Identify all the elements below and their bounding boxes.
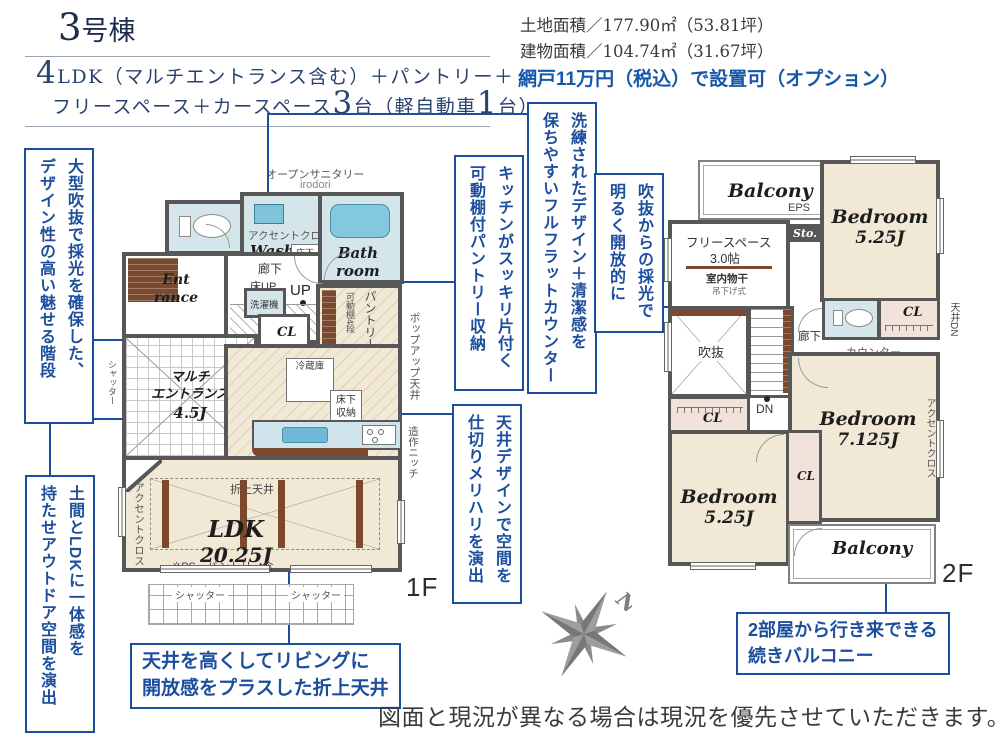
void-label: 吹抜	[696, 342, 726, 361]
closet-2f-left-label: CL	[703, 411, 723, 426]
building-area: 建物面積／104.74㎡（31.67坪）	[520, 38, 773, 62]
fridge-label: 冷蔵庫	[287, 361, 333, 373]
bathtub	[330, 204, 390, 238]
drying-pole	[686, 266, 772, 269]
callout-pantry: キッチンがスッキリ片付く 可動棚付パントリー収納	[454, 155, 524, 391]
spec-num-4ldk: 4	[36, 55, 57, 91]
callout-pantry-line2: 可動棚付パントリー収納	[461, 165, 489, 381]
stove-burner-3	[372, 437, 378, 443]
window-bedroom3-bottom	[690, 562, 756, 570]
pantry-shelf-label: 可動棚4段	[344, 292, 357, 344]
bedroom2-label: Bedroom 7.125J	[804, 408, 932, 450]
connector-counter-h	[267, 113, 527, 115]
callout-living-line2: 開放感をプラスした折上天井	[142, 676, 389, 703]
toilet-tank-1f	[179, 216, 191, 237]
wash-sink	[254, 204, 284, 224]
callout-counter: 洗練されたデザイン＋清潔感を 保ちやすいフルフラットカウンター	[527, 102, 597, 394]
storage-2f-label: Sto.	[793, 227, 817, 240]
spec-num-cars: 3	[333, 85, 354, 121]
popup-ceiling-label: ポップアップ天井	[406, 312, 422, 400]
callout-ceiling-line2: 仕切りメリハリを演出	[459, 414, 487, 594]
stove-burner-2	[378, 429, 384, 435]
entrance-label-2: rance	[154, 290, 198, 308]
callout-counter-line2: 保ちやすいフルフラットカウンター	[534, 112, 562, 384]
toilet-tank-2f	[833, 310, 843, 326]
dn-label: DN	[756, 402, 773, 416]
compass-rose: N	[536, 586, 632, 682]
bedroom2-name: Bedroom	[804, 408, 932, 430]
void-room: 吹抜	[668, 306, 750, 398]
bedroom1-label: Bedroom 5.25J	[830, 206, 930, 248]
callout-doma-line1: 土間とLDKに一体感を	[60, 485, 88, 723]
callout-void: 吹抜からの採光で 明るく開放的に	[594, 173, 664, 333]
balcony-bottom-label: Balcony	[832, 538, 912, 559]
callout-doma-line2: 持たせアウトドア空間を演出	[32, 485, 60, 723]
shutter-label-left: シャッター	[106, 360, 119, 405]
connector-doma-v	[49, 418, 51, 475]
callout-living-line1: 天井を高くしてリビングに	[142, 649, 389, 676]
callout-living: 天井を高くしてリビングに 開放感をプラスした折上天井	[130, 643, 401, 709]
floor1-label: 1F	[406, 572, 438, 603]
entrance-label-1: Ent	[154, 272, 198, 290]
callout-stairs-line1: 大型吹抜で採光を確保した、	[59, 158, 87, 414]
screen-option-note: 網戸11万円（税込）で設置可（オプション）	[518, 64, 899, 91]
fridge-space: 冷蔵庫	[286, 358, 334, 402]
closet-2f-mid: CL	[786, 430, 822, 524]
callout-pantry-line1: キッチンがスッキリ片付く	[489, 165, 517, 381]
indoor-drying-label: 室内物干	[706, 271, 748, 286]
pantry-label: パントリー	[362, 290, 379, 346]
void-rail	[672, 310, 746, 316]
ceiling-beam-1	[162, 480, 169, 548]
callout-ceiling: 天井デザインで空間を 仕切りメリハリを演出	[452, 404, 522, 604]
door-arc-toilet-2f	[798, 308, 822, 332]
floor2-label: 2F	[942, 558, 974, 589]
closet-2f-mid-label: CL	[797, 469, 815, 483]
callout-balcony: 2部屋から行き来できる 続きバルコニー	[736, 612, 950, 675]
callout-balcony-line1: 2部屋から行き来できる	[748, 618, 938, 644]
land-area: 土地面積／177.90㎡（53.81坪）	[520, 12, 773, 36]
header-rule-top	[25, 56, 490, 57]
callout-stairs: 大型吹抜で採光を確保した、 デザイン性の高い魅せる階段	[24, 148, 94, 424]
free-space-room: フリースペース 3.0帖 室内物干 吊下げ式	[668, 220, 790, 310]
spec-num-kei: 1	[477, 85, 498, 121]
closet-1f-label: CL	[277, 325, 297, 340]
coffered-ceiling-label: 折上天井	[227, 481, 277, 497]
closet-2f-top: CL	[878, 298, 940, 340]
niche-label: 造作ニッチ	[406, 426, 421, 479]
window-bedroom1-right	[936, 198, 944, 254]
callout-balcony-line2: 続きバルコニー	[748, 644, 938, 670]
bedroom3-size: 5.25J	[678, 508, 780, 528]
bedroom3-label: Bedroom 5.25J	[678, 486, 780, 528]
building-suffix: 号棟	[82, 16, 136, 47]
kitchen-counter	[252, 420, 402, 450]
window-ldk-right	[397, 500, 405, 544]
spec-text-1: LDK（マルチエントランス含む）＋パントリー＋	[57, 66, 514, 88]
stove	[362, 425, 396, 445]
closet-2f-top-rod	[885, 325, 933, 331]
balcony-top-label: Balcony	[728, 180, 813, 202]
balcony-top: Balcony EPS	[698, 160, 826, 220]
callout-void-line2: 明るく開放的に	[601, 183, 629, 323]
window-bedroom2-right	[936, 420, 944, 478]
callout-void-line1: 吹抜からの採光で	[629, 183, 657, 323]
connector-counter-v	[267, 113, 269, 201]
bedroom1-name: Bedroom	[830, 206, 930, 228]
building-title: 3号棟	[58, 6, 136, 49]
bedroom2-size: 7.125J	[804, 430, 932, 450]
callout-doma: 土間とLDKに一体感を 持たせアウトドア空間を演出	[25, 475, 95, 733]
bedroom3-name: Bedroom	[678, 486, 780, 508]
free-space-size: 3.0帖	[710, 248, 740, 267]
entrance-room: Ent rance	[122, 252, 228, 338]
window-ldk-left	[118, 487, 126, 537]
closet-2f-top-label: CL	[903, 305, 923, 320]
accent-cloth-label-bedroom2: アクセントクロス	[922, 398, 937, 478]
spec-line-1: 4LDK（マルチエントランス含む）＋パントリー＋	[36, 62, 514, 89]
toilet-fixture-2f	[845, 309, 873, 327]
shutter-label-1: シャッター	[172, 587, 228, 602]
eps-label: EPS	[788, 202, 810, 214]
callout-stairs-line2: デザイン性の高い魅せる階段	[31, 158, 59, 414]
open-sanitary-sub-label: irodori	[300, 179, 331, 191]
accent-cloth-label-ldk: アクセントクロス	[132, 482, 147, 566]
callout-counter-line1: 洗練されたデザイン＋清潔感を	[562, 112, 590, 384]
ceiling-beam-4	[356, 480, 363, 548]
compass-north-letter: N	[611, 586, 632, 618]
pantry-room: 可動棚4段 パントリー	[316, 284, 402, 350]
bedroom1: Bedroom 5.25J	[820, 160, 940, 302]
kitchen-sink	[282, 427, 328, 443]
window-bedroom1-top	[850, 156, 916, 164]
ldk-name: LDK	[176, 516, 296, 543]
closet-2f-left: CL	[668, 396, 750, 434]
window-ldk-bottom-2	[290, 565, 372, 573]
stove-burner-1	[367, 429, 373, 435]
up-label: UP	[290, 282, 311, 299]
bedroom1-size: 5.25J	[830, 228, 930, 248]
closet-2f-left-rod	[677, 407, 743, 413]
toilet-room-2f	[822, 298, 880, 340]
window-freespace-left	[664, 238, 672, 282]
washer-label: 洗濯機	[250, 297, 279, 311]
storage-2f: Sto.	[786, 224, 824, 242]
header-rule-bottom	[25, 126, 490, 127]
hanging-label: 吊下げ式	[712, 285, 746, 297]
shutter-label-2: シャッター	[288, 587, 344, 602]
building-number: 3	[58, 6, 82, 49]
hallway-label-1f: 廊下	[258, 260, 282, 277]
callout-ceiling-line1: 天井デザインで空間を	[487, 414, 515, 594]
window-void-left	[664, 322, 672, 372]
disclaimer-text: 図面と現況が異なる場合は現況を優先させていただきます。	[378, 698, 1000, 732]
ldk-room: アクセントクロス 折上天井 LDK 20.25J ※PS・パントリー含	[122, 456, 402, 572]
ceiling-dn-label: 天井DN	[946, 302, 961, 336]
underfloor2-l1: 床下	[331, 395, 361, 408]
pantry-shelf	[322, 290, 336, 344]
floor-plan-sheet: 3号棟 4LDK（マルチエントランス含む）＋パントリー＋ フリースペース＋カース…	[0, 0, 1000, 750]
entrance-label: Ent rance	[154, 272, 198, 307]
window-ldk-bottom-1	[160, 565, 270, 573]
underfloor2-l2: 収納	[331, 408, 361, 421]
